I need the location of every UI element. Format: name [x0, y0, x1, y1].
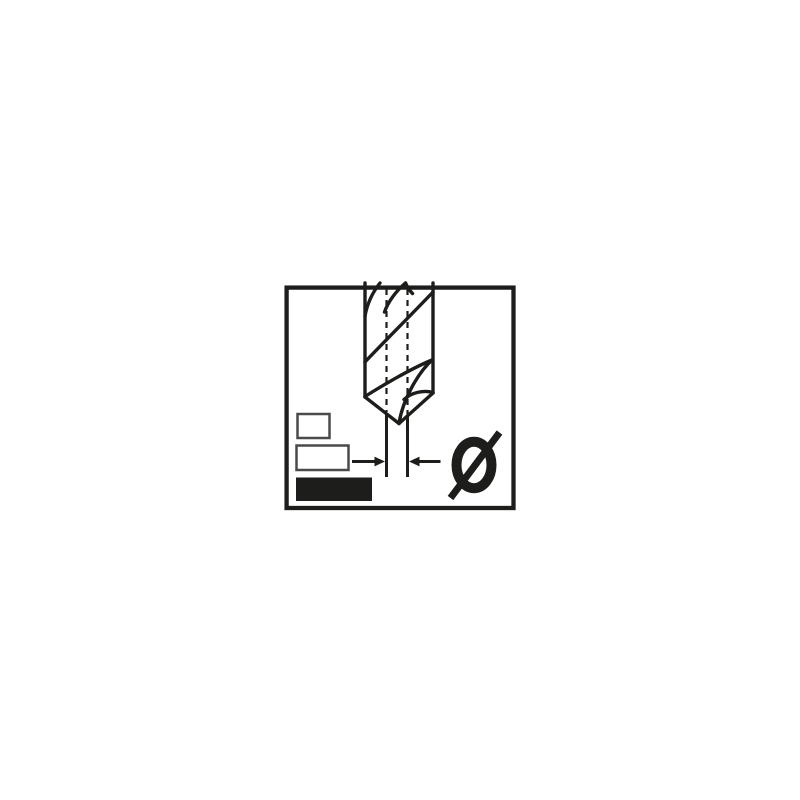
diameter-symbol: [451, 433, 500, 499]
dimension-arrowhead-left: [375, 457, 386, 467]
dimension-arrowhead-right: [409, 457, 420, 467]
size-rect-medium-outline: [297, 446, 349, 471]
pictogram-frame-border: [287, 288, 514, 508]
size-rect-small-outline: [298, 414, 330, 438]
drill-tip-left-taper: [365, 397, 399, 424]
drill-flute-spiral-main: [365, 292, 433, 362]
diameter-centerlines: [387, 289, 408, 415]
page-background: [0, 0, 800, 800]
size-indicator-rectangles: [296, 414, 372, 501]
size-rect-large-filled: [296, 478, 372, 502]
drill-bit: [365, 283, 433, 424]
drill-diameter-pictogram-image: [0, 0, 800, 800]
